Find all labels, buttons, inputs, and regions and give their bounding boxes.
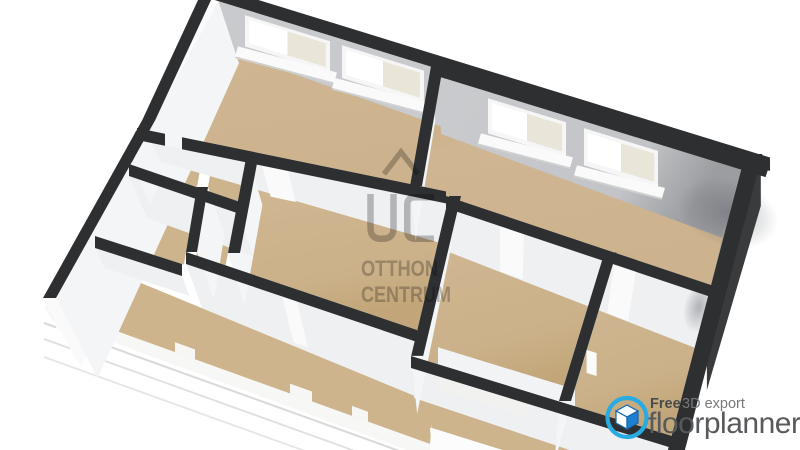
svg-text:OTTHON: OTTHON: [361, 256, 438, 281]
svg-text:floorplanner: floorplanner: [648, 407, 800, 440]
svg-text:CENTRUM: CENTRUM: [361, 282, 451, 307]
